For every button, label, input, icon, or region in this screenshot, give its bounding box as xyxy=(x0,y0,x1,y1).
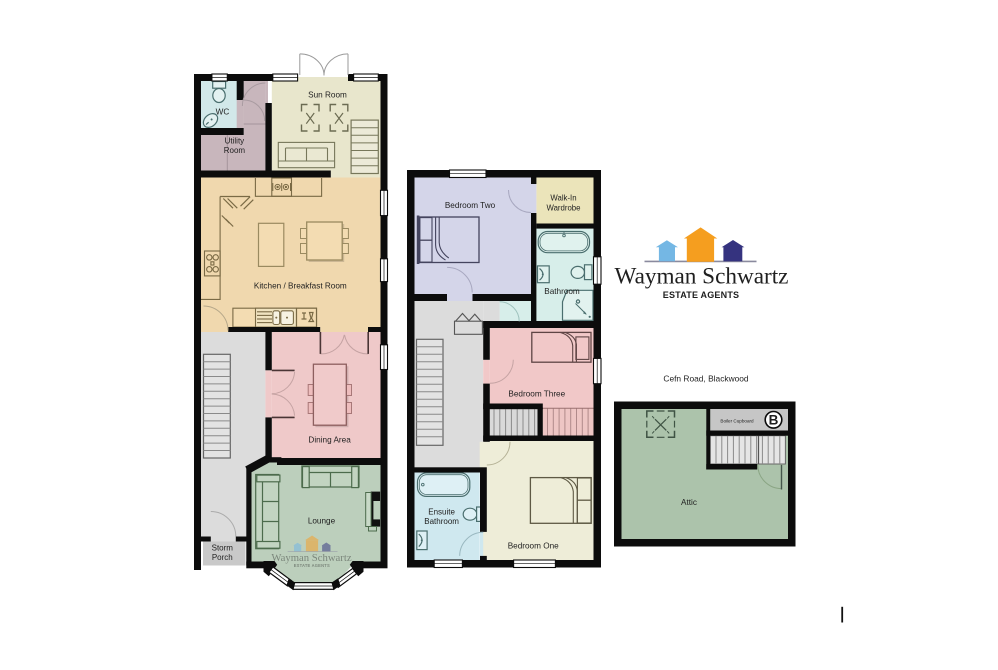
svg-text:Lounge: Lounge xyxy=(308,517,336,526)
svg-text:Sun Room: Sun Room xyxy=(308,91,347,100)
svg-text:Ensuite: Ensuite xyxy=(428,507,455,516)
svg-text:ESTATE AGENTS: ESTATE AGENTS xyxy=(294,563,330,568)
svg-text:Kitchen / Breakfast Room: Kitchen / Breakfast Room xyxy=(254,281,347,290)
svg-text:ESTATE AGENTS: ESTATE AGENTS xyxy=(663,290,739,300)
svg-text:Walk-In: Walk-In xyxy=(550,193,576,202)
svg-text:Wayman Schwartz: Wayman Schwartz xyxy=(615,264,789,290)
svg-text:Attic: Attic xyxy=(681,498,697,507)
svg-text:Storm: Storm xyxy=(212,544,234,553)
svg-text:Bedroom Two: Bedroom Two xyxy=(445,201,496,210)
svg-text:Bathroom: Bathroom xyxy=(424,517,459,526)
svg-text:Bathroom: Bathroom xyxy=(544,287,580,296)
svg-text:Room: Room xyxy=(224,146,246,155)
svg-text:Bedroom One: Bedroom One xyxy=(508,541,559,550)
svg-text:WC: WC xyxy=(216,108,230,117)
svg-text:Porch: Porch xyxy=(212,553,233,562)
svg-text:Cefn Road, Blackwood: Cefn Road, Blackwood xyxy=(663,373,749,383)
svg-text:Dining Area: Dining Area xyxy=(308,436,351,445)
svg-text:B: B xyxy=(769,413,779,428)
svg-text:Boiler Cupboard: Boiler Cupboard xyxy=(720,419,754,424)
svg-text:Wardrobe: Wardrobe xyxy=(547,204,581,213)
svg-text:Bedroom Three: Bedroom Three xyxy=(508,390,565,399)
svg-text:Utility: Utility xyxy=(225,137,245,146)
